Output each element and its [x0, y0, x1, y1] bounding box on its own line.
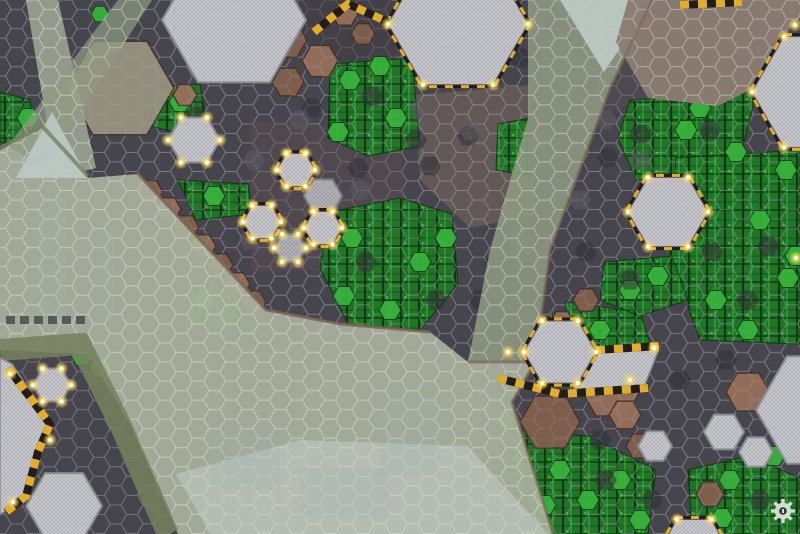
- corner-light: [284, 151, 288, 155]
- corner-light: [8, 372, 12, 376]
- bright-circuit-hex: [719, 470, 741, 489]
- corner-light: [69, 383, 73, 387]
- bright-circuit-hex: [327, 122, 349, 141]
- bright-circuit-hex: [725, 142, 747, 161]
- corner-light: [179, 160, 183, 164]
- road-marking: [76, 316, 85, 324]
- road-marking: [6, 316, 15, 324]
- corner-light: [304, 246, 308, 250]
- road-patch: [96, 232, 114, 322]
- corner-light: [48, 438, 52, 442]
- corner-light: [686, 244, 690, 248]
- road-marking: [34, 316, 43, 324]
- bright-circuit-hex: [777, 268, 799, 287]
- bright-circuit-hex: [409, 252, 431, 271]
- corner-light: [330, 242, 334, 246]
- bright-circuit-hex: [577, 490, 599, 509]
- game-mat-image: [0, 0, 800, 534]
- corner-light: [794, 256, 798, 260]
- corner-light: [303, 151, 307, 155]
- corner-light: [280, 260, 284, 264]
- corner-light: [313, 168, 317, 172]
- corner-light: [40, 399, 44, 403]
- gear-logo-icon: [771, 499, 795, 523]
- corner-light: [706, 210, 710, 214]
- corner-light: [241, 220, 245, 224]
- corner-light: [166, 138, 170, 142]
- corner-light: [594, 350, 598, 354]
- bright-circuit-hex: [737, 320, 759, 339]
- corner-light: [750, 90, 754, 94]
- corner-light: [628, 378, 632, 382]
- corner-light: [279, 220, 283, 224]
- corner-light: [646, 244, 650, 248]
- corner-light: [506, 350, 510, 354]
- sci-fi-hex-battle-mat: [0, 0, 800, 534]
- corner-light: [793, 23, 797, 27]
- bright-circuit-hex: [369, 56, 391, 75]
- bright-circuit-hex: [339, 70, 361, 89]
- corner-light: [31, 383, 35, 387]
- bright-circuit-hex: [675, 120, 697, 139]
- bright-circuit-hex: [333, 286, 355, 305]
- corner-light: [686, 175, 690, 179]
- hazard-strip: [680, 2, 742, 5]
- bright-circuit-hex: [749, 210, 771, 229]
- corner-light: [205, 115, 209, 119]
- corner-light: [296, 232, 300, 236]
- corner-light: [782, 34, 786, 38]
- corner-light: [250, 203, 254, 207]
- corner-light: [218, 138, 222, 142]
- road-patch: [300, 468, 390, 518]
- corner-light: [59, 366, 63, 370]
- road-patch: [380, 396, 440, 476]
- road-marking: [48, 316, 57, 324]
- corner-light: [250, 236, 254, 240]
- bright-circuit-hex: [589, 320, 611, 339]
- corner-light: [59, 399, 63, 403]
- corner-light: [340, 226, 344, 230]
- corner-light: [284, 184, 288, 188]
- corner-light: [626, 210, 630, 214]
- corner-light: [522, 350, 526, 354]
- bright-circuit-hex: [203, 186, 225, 205]
- corner-light: [646, 175, 650, 179]
- corner-light: [421, 82, 425, 86]
- corner-light: [782, 145, 786, 149]
- bright-circuit-hex: [549, 460, 571, 479]
- corner-light: [275, 168, 279, 172]
- road-patch: [40, 200, 66, 320]
- bright-circuit-hex: [775, 160, 797, 179]
- corner-light: [540, 381, 544, 385]
- corner-light: [311, 209, 315, 213]
- corner-light: [675, 517, 679, 521]
- bright-circuit-hex: [385, 108, 407, 127]
- bright-circuit-hex: [435, 228, 457, 247]
- corner-light: [491, 82, 495, 86]
- corner-light: [296, 260, 300, 264]
- bright-circuit-hex: [647, 266, 669, 285]
- road-patch: [210, 430, 280, 490]
- road-marking: [62, 316, 71, 324]
- bright-circuit-hex: [379, 300, 401, 319]
- corner-light: [11, 500, 15, 504]
- corner-light: [272, 246, 276, 250]
- bright-circuit-hex: [705, 290, 727, 309]
- corner-light: [526, 22, 530, 26]
- corner-light: [576, 381, 580, 385]
- corner-light: [205, 160, 209, 164]
- corner-light: [303, 184, 307, 188]
- corner-light: [280, 232, 284, 236]
- corner-light: [269, 236, 273, 240]
- corner-light: [40, 366, 44, 370]
- corner-light: [709, 517, 713, 521]
- bright-circuit-hex: [629, 510, 651, 529]
- corner-light: [269, 203, 273, 207]
- corner-light: [540, 319, 544, 323]
- corner-light: [652, 346, 656, 350]
- corner-light: [330, 209, 334, 213]
- corner-light: [576, 319, 580, 323]
- corner-light: [179, 115, 183, 119]
- road-marking: [20, 316, 29, 324]
- corner-light: [386, 22, 390, 26]
